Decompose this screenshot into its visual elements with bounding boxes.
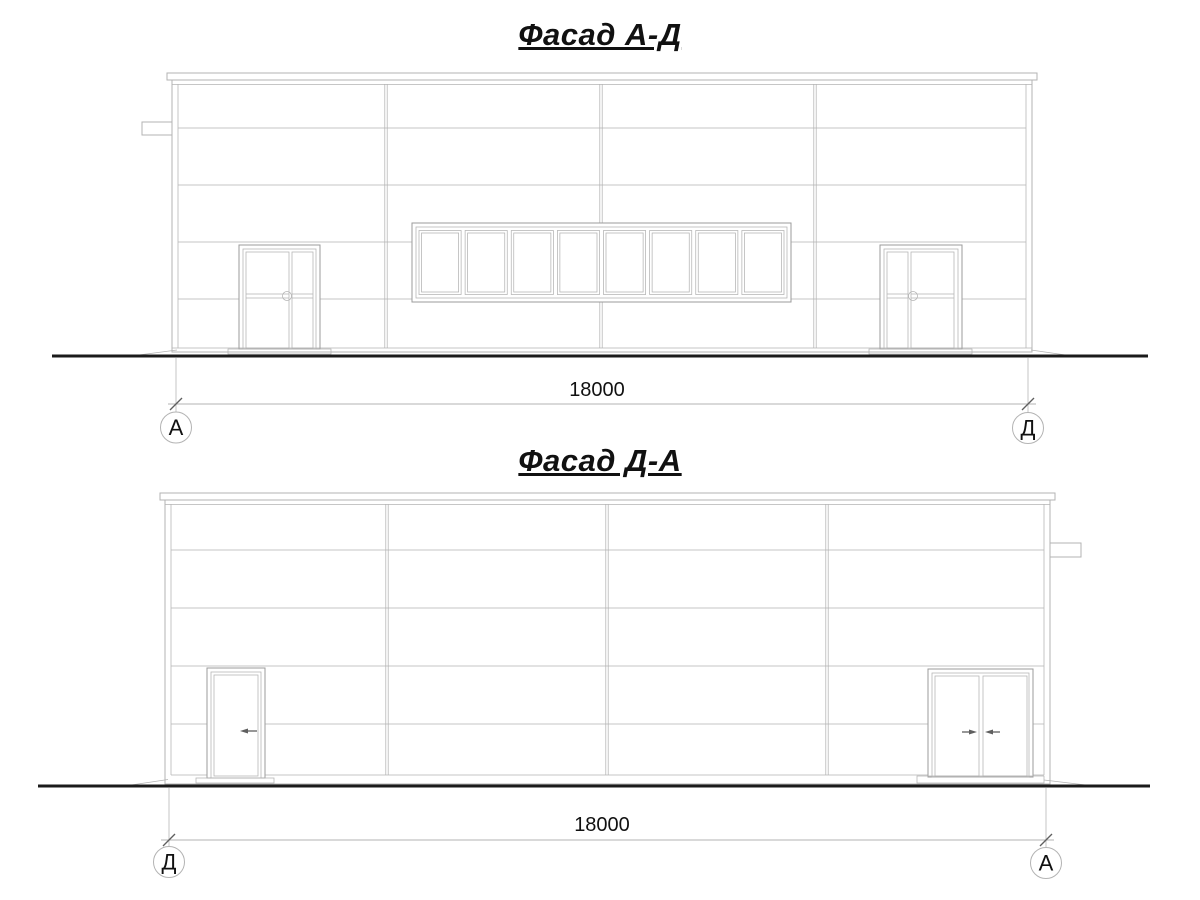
dimension-text: 18000	[574, 814, 630, 836]
window-pane-inner	[652, 233, 689, 292]
parapet	[167, 73, 1037, 80]
elevations-drawing: 18000 А Д	[0, 0, 1200, 900]
door-inner-frame	[243, 249, 316, 349]
facade-ad-drawing: 18000 А Д	[52, 73, 1148, 444]
entrance-door-right	[869, 245, 972, 354]
dimension-da: 18000 Д А	[154, 788, 1062, 879]
door-frame	[880, 245, 962, 349]
window-pane-inner	[468, 233, 505, 292]
window-pane-inner	[560, 233, 597, 292]
door-leaf-narrow	[887, 252, 908, 348]
window-band	[412, 223, 791, 302]
wall-outline	[165, 500, 1050, 784]
window-pane	[465, 231, 507, 295]
window-pane	[696, 231, 738, 295]
window-pane	[604, 231, 646, 295]
door-leaf-narrow	[292, 252, 313, 348]
axis-label: Д	[1021, 416, 1036, 441]
entrance-door-left	[228, 245, 331, 354]
single-door-left	[196, 668, 274, 783]
wall-protrusion-right	[1050, 543, 1081, 557]
double-door-right	[917, 669, 1044, 783]
facade-da-drawing: 18000 Д А	[38, 493, 1150, 879]
window-pane-inner	[514, 233, 551, 292]
door-frame	[928, 669, 1033, 777]
window-pane	[557, 231, 599, 295]
door-threshold	[196, 778, 274, 783]
window-pane-inner	[744, 233, 781, 292]
door-handle-icon	[240, 729, 248, 734]
window-pane	[419, 231, 461, 295]
door-leaf	[935, 676, 979, 776]
window-band-inner-frame	[416, 227, 787, 298]
window-pane-inner	[422, 233, 459, 292]
window-pane	[511, 231, 553, 295]
axis-label: А	[1039, 851, 1054, 876]
door-handle-icon	[283, 292, 292, 301]
door-frame	[239, 245, 320, 349]
door-inner-frame	[932, 673, 1029, 777]
axis-label: А	[169, 415, 184, 440]
window-pane	[650, 231, 692, 295]
door-handle-icon	[969, 730, 977, 735]
dimension-ad: 18000 А Д	[161, 358, 1044, 444]
drawing-sheet: Фасад А-Д Фасад Д-А	[0, 0, 1200, 900]
window-band-panes	[419, 231, 784, 295]
door-leaf	[214, 675, 258, 776]
wall-protrusion-left	[142, 122, 172, 135]
window-pane-inner	[698, 233, 735, 292]
window-pane	[742, 231, 784, 295]
door-inner-frame	[884, 249, 958, 349]
door-inner-frame	[211, 672, 261, 778]
door-handle-icon	[909, 292, 918, 301]
parapet	[160, 493, 1055, 500]
door-leaf-wide	[911, 252, 954, 348]
door-frame	[207, 668, 265, 778]
window-band-frame	[412, 223, 791, 302]
dimension-text: 18000	[569, 379, 625, 401]
door-leaf	[983, 676, 1027, 776]
door-handle-icon	[985, 730, 993, 735]
axis-label: Д	[162, 850, 177, 875]
window-pane-inner	[606, 233, 643, 292]
door-leaf-wide	[246, 252, 289, 348]
